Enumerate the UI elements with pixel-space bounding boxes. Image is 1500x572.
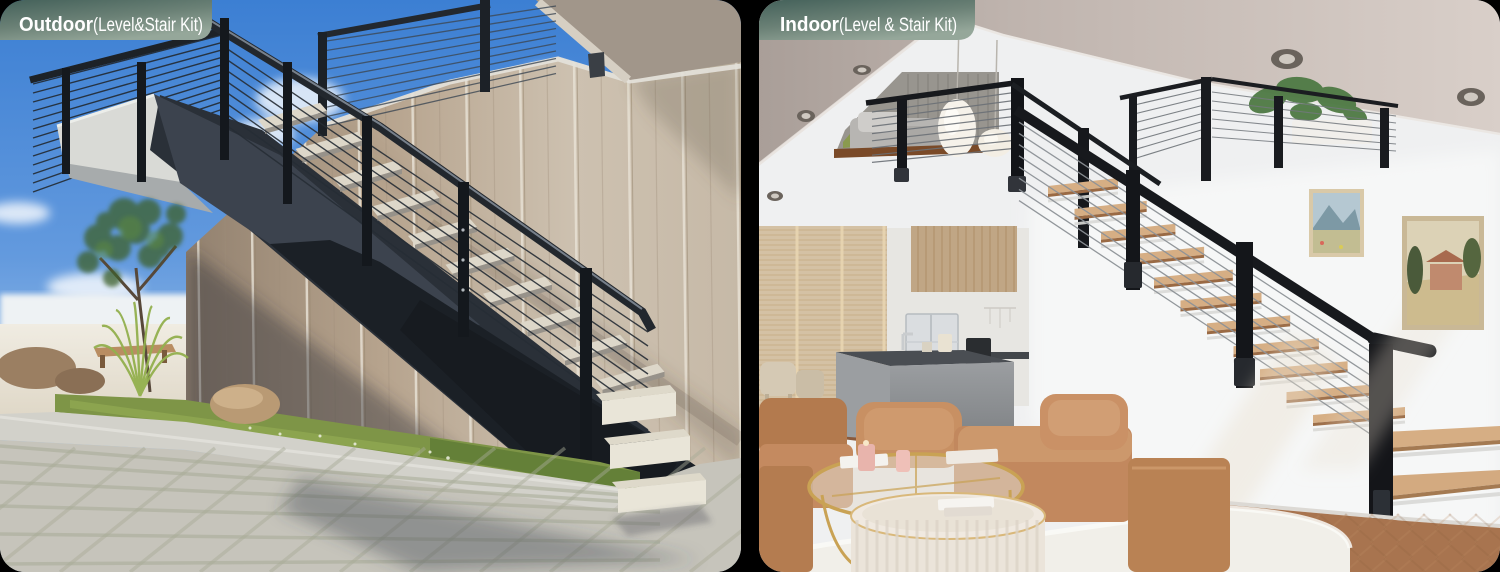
svg-text:Indoor(Level & Stair Kit): Indoor(Level & Stair Kit) (780, 13, 957, 36)
svg-text:Outdoor(Level&Stair Kit): Outdoor(Level&Stair Kit) (19, 13, 203, 36)
